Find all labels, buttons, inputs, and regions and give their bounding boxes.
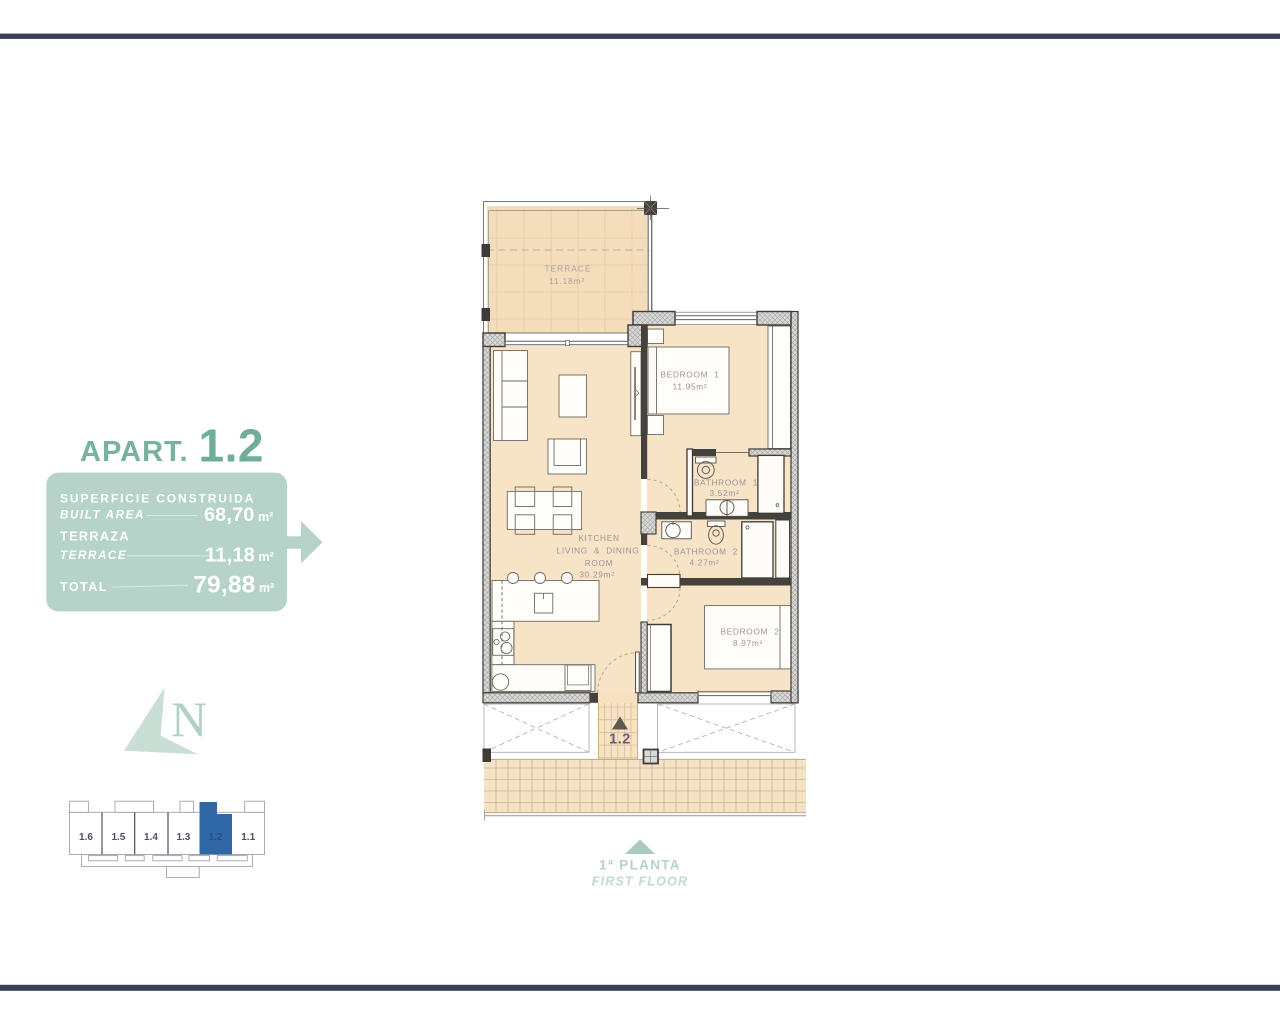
svg-text:1.2: 1.2 [209,832,223,843]
svg-text:FIRST FLOOR: FIRST FLOOR [592,875,689,889]
svg-text:TERRACE: TERRACE [544,264,591,274]
svg-text:68,70: 68,70 [204,504,255,526]
svg-text:1.2: 1.2 [609,732,631,748]
svg-text:1.1: 1.1 [241,832,255,843]
svg-text:4.27m²: 4.27m² [689,558,719,568]
svg-text:m²: m² [259,581,274,595]
svg-text:APART.: APART. [80,436,189,468]
svg-text:79,88: 79,88 [193,571,255,598]
svg-text:m²: m² [258,510,273,524]
svg-text:30.29m²: 30.29m² [579,570,614,580]
svg-text:ROOM: ROOM [585,558,614,568]
svg-text:1.5: 1.5 [111,832,125,843]
svg-text:1.3: 1.3 [176,832,190,843]
svg-text:BATHROOM 2: BATHROOM 2 [674,547,738,557]
svg-text:11,18: 11,18 [205,544,255,566]
svg-text:8.97m²: 8.97m² [733,638,763,648]
svg-text:BEDROOM 1: BEDROOM 1 [660,370,719,380]
svg-text:LIVING & DINING: LIVING & DINING [557,546,640,556]
svg-text:1.4: 1.4 [144,832,158,843]
svg-text:1.6: 1.6 [79,832,93,843]
svg-text:1ª PLANTA: 1ª PLANTA [599,858,681,873]
svg-text:BEDROOM 2: BEDROOM 2 [720,627,779,637]
svg-text:11.95m²: 11.95m² [673,382,708,392]
svg-text:TERRACE: TERRACE [60,549,127,562]
svg-text:BUILT AREA: BUILT AREA [60,509,145,522]
svg-text:11.18m²: 11.18m² [549,276,585,286]
svg-text:BATHROOM 1: BATHROOM 1 [694,478,758,488]
svg-text:3.52m²: 3.52m² [709,488,739,498]
svg-text:TOTAL: TOTAL [60,580,108,594]
svg-text:m²: m² [259,550,274,564]
svg-text:1.2: 1.2 [199,420,264,472]
svg-text:N: N [171,691,207,747]
svg-text:KITCHEN: KITCHEN [578,533,619,543]
svg-text:TERRAZA: TERRAZA [60,530,130,544]
